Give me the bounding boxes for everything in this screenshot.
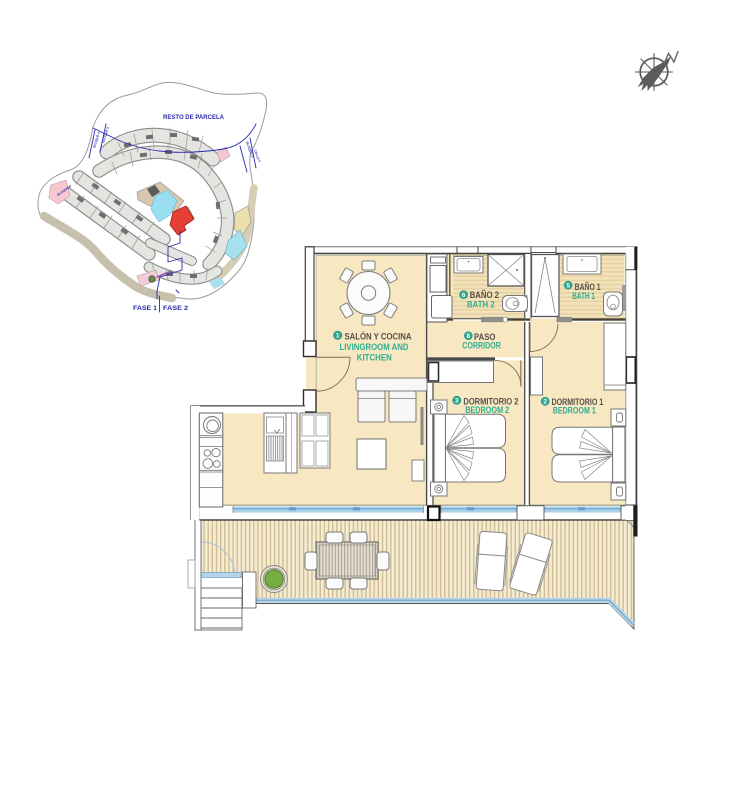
svg-text:FASE 1: FASE 1	[133, 305, 157, 312]
svg-text:1: 1	[336, 333, 340, 340]
svg-text:8: 8	[467, 333, 471, 340]
svg-text:2: 2	[543, 399, 547, 406]
svg-text:CORRIDOR: CORRIDOR	[462, 341, 501, 351]
svg-text:BEDROOM 1: BEDROOM 1	[553, 406, 596, 416]
svg-text:5: 5	[566, 283, 570, 290]
svg-text:RESTO DE PARCELA: RESTO DE PARCELA	[163, 114, 224, 121]
svg-text:FASE 2: FASE 2	[163, 305, 188, 312]
svg-text:BEDROOM 2: BEDROOM 2	[465, 405, 509, 415]
svg-text:6: 6	[462, 292, 466, 299]
svg-text:LIVINGROOM AND: LIVINGROOM AND	[340, 342, 409, 352]
svg-text:3: 3	[455, 398, 459, 405]
svg-text:KITCHEN: KITCHEN	[357, 353, 392, 363]
svg-text:BATH 1: BATH 1	[572, 291, 595, 301]
svg-text:SALÓN Y COCINA: SALÓN Y COCINA	[345, 331, 412, 343]
svg-text:BATH 2: BATH 2	[467, 300, 495, 310]
